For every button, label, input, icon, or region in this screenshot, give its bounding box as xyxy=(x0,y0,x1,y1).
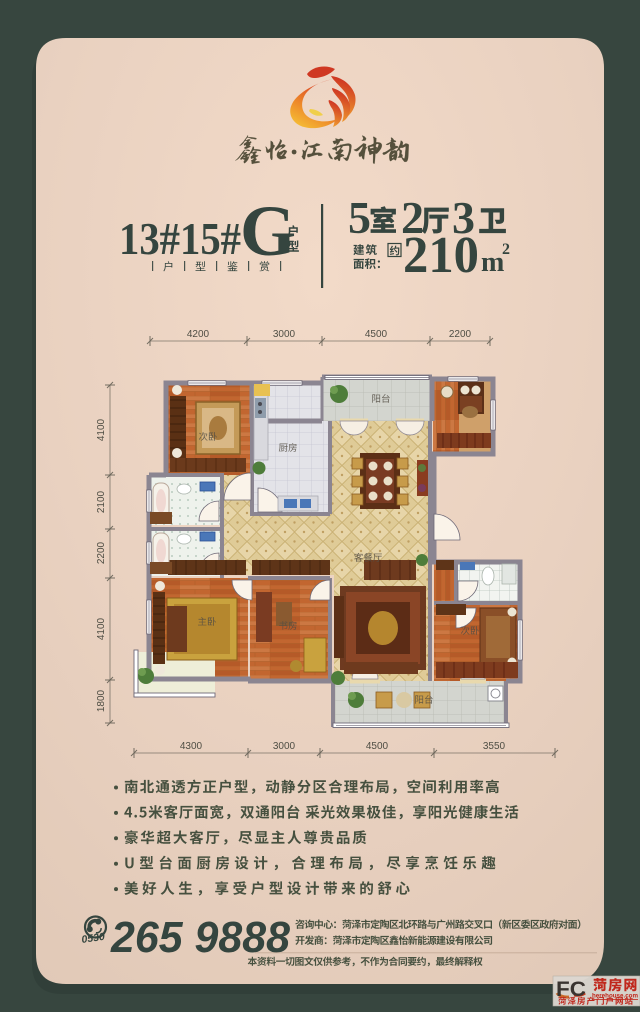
svg-text:4300: 4300 xyxy=(180,741,203,752)
svg-text:2200: 2200 xyxy=(96,541,107,564)
svg-text:2100: 2100 xyxy=(96,490,107,513)
svg-text:2: 2 xyxy=(502,241,510,258)
svg-text:13#15#: 13#15# xyxy=(119,213,241,264)
svg-text:3000: 3000 xyxy=(273,329,296,340)
svg-text:4100: 4100 xyxy=(96,617,107,640)
svg-text:4100: 4100 xyxy=(96,418,107,441)
svg-text:2200: 2200 xyxy=(449,329,472,340)
svg-text:4200: 4200 xyxy=(187,329,210,340)
svg-text:3000: 3000 xyxy=(273,741,296,752)
svg-text:4500: 4500 xyxy=(365,329,388,340)
svg-text:5: 5 xyxy=(348,192,371,243)
svg-text:210: 210 xyxy=(403,227,479,284)
svg-text:1800: 1800 xyxy=(96,689,107,712)
svg-text:m: m xyxy=(481,247,504,278)
svg-text:4500: 4500 xyxy=(366,741,389,752)
svg-text:G: G xyxy=(240,191,296,271)
svg-text:3550: 3550 xyxy=(483,741,506,752)
svg-text:265 9888: 265 9888 xyxy=(110,913,290,962)
